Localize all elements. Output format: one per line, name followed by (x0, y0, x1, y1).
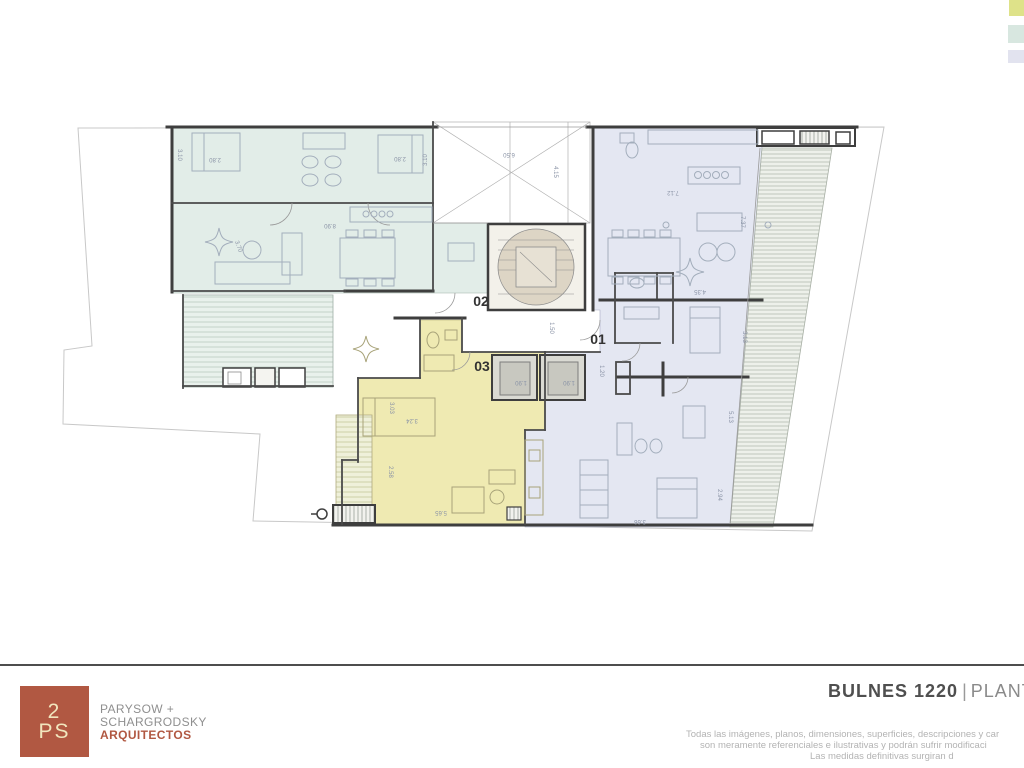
unit-label-03: 03 (474, 358, 490, 374)
unit-label-01: 01 (590, 331, 606, 347)
dim: 2.80 (209, 156, 221, 162)
dim: 4.15 (552, 166, 558, 178)
staircase (488, 224, 585, 310)
disclaimer-line-2: son meramente referenciales e ilustrativ… (700, 741, 987, 751)
legend-swatch-lavender (1008, 50, 1024, 63)
sheet-title-separator: | (958, 681, 971, 701)
dim: 1.90 (515, 379, 527, 385)
door-handle (317, 509, 327, 519)
dim: 1.90 (563, 379, 575, 385)
legend-swatch-yellow-green (1009, 0, 1024, 16)
dim: 8.90 (324, 222, 336, 228)
dim: 3.03 (388, 402, 394, 414)
dim: 3.13 (741, 331, 747, 343)
parapet-box-hatched (800, 131, 829, 144)
dim: 7.12 (667, 189, 679, 195)
logo-text-top: 2 (48, 702, 62, 722)
dim: 3.24 (406, 417, 418, 423)
sheet-title: BULNES 1220|PLANT (828, 681, 1024, 702)
firm-name: PARYSOW + SCHARGRODSKY ARQUITECTOS (100, 703, 207, 742)
parapet-box-1 (762, 131, 794, 144)
terrace-planter-2 (255, 368, 275, 387)
dim: 3.10 (176, 149, 182, 161)
firm-line-3: ARQUITECTOS (100, 729, 207, 742)
dim: 7.37 (739, 216, 745, 228)
dim: 5.65 (435, 509, 447, 515)
dim: 4.35 (694, 288, 706, 294)
sheet-title-plan-name: PLANT (971, 681, 1024, 701)
courtyard (433, 122, 590, 223)
unit-label-02: 02 (473, 293, 489, 309)
disclaimer-line-1: Todas las imágenes, planos, dimensiones,… (686, 730, 999, 740)
terrace-planter-3 (279, 368, 305, 387)
disclaimer-line-3: Las medidas definitivas surgiran d (810, 752, 954, 762)
service-hatch-box (507, 507, 521, 520)
dim: 6.50 (503, 151, 515, 157)
dim: 1.20 (598, 365, 604, 377)
dim: 2.80 (394, 155, 406, 161)
plant-star-icon (353, 336, 379, 362)
firm-logo: 2 PS (20, 686, 89, 757)
footer-divider (0, 664, 1024, 666)
legend-swatch-teal (1008, 25, 1024, 43)
balcony-door-box (333, 505, 375, 523)
plan-sheet: 02 01 03 2.80 3.10 2.80 3.10 8.90 3.70 6… (0, 0, 1024, 768)
dim: 2.58 (387, 466, 393, 478)
dim: 3.10 (423, 154, 429, 166)
floor-plan-drawing: 02 01 03 2.80 3.10 2.80 3.10 8.90 3.70 6… (0, 0, 1024, 768)
dim: 5.13 (727, 411, 733, 423)
dim: 3.66 (634, 518, 646, 524)
sheet-title-project: BULNES 1220 (828, 681, 958, 701)
logo-text-bottom: PS (38, 722, 70, 742)
dim: 2.94 (716, 489, 722, 501)
parapet-box-2 (836, 132, 850, 144)
dim: 1.50 (548, 322, 554, 334)
